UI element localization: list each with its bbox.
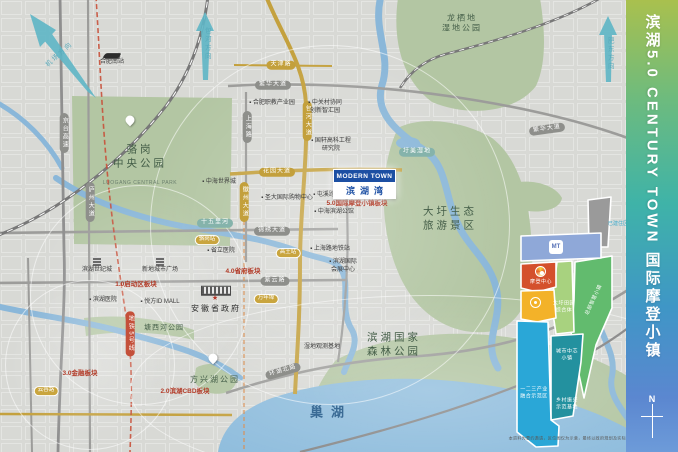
panel-labels-layer: MT 已建住区摩登中心大圩田园 综合体总部智慧小镇城市中芯 小镇一二三产业 融合… (0, 0, 678, 452)
plot-label-modern-center: 摩登中心 (530, 279, 552, 286)
compass-n-label: N (637, 394, 667, 404)
page-title: 滨湖5.0 CENTURY TOWN 国际摩登小镇 (642, 14, 663, 360)
starburst-logo-icon (535, 266, 546, 277)
binhu-location-map: 机场方向包河方向肥东方向合肥南站地铁5号线骆岗站高王站万年埠云谷路京台高速庐州大… (0, 0, 678, 452)
stamp-logo-icon (530, 297, 541, 308)
sidebar: 滨湖5.0 CENTURY TOWN 国际摩登小镇 N (626, 0, 678, 452)
plot-label-city-core-town: 城市中芯 小镇 (556, 349, 578, 362)
modern-town-emblem-icon: MT (549, 240, 563, 254)
plot-label-dawei-pastoral: 大圩田园 综合体 (553, 301, 575, 314)
plot-label-rural-revival: 乡村振兴 示范基地 (556, 398, 578, 411)
disclaimer: 本资料为要约邀请，区位图仅为示意，最终以政府规划及实际交付为准 (509, 436, 644, 441)
compass-cross-icon (637, 404, 667, 438)
plot-label-hq-smart-town: 总部智慧小镇 (584, 284, 604, 317)
compass: N (637, 394, 667, 440)
plot-label-built-area: 已建住区 (608, 221, 628, 228)
plot-label-industry-fusion: 一二三产业 融合示范区 (520, 387, 548, 400)
